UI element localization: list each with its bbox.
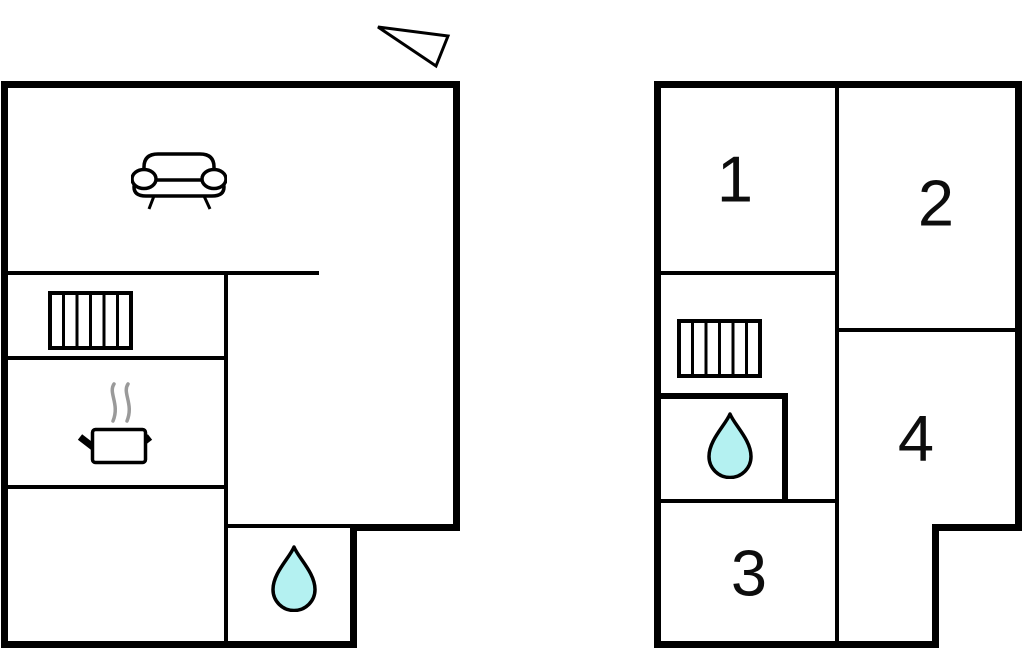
wall xyxy=(1,81,8,648)
water-drop-icon xyxy=(706,411,754,479)
wall xyxy=(453,81,460,531)
wall xyxy=(1015,81,1022,531)
wall xyxy=(654,81,1022,88)
room-label-3: 3 xyxy=(731,541,767,606)
radiator-icon xyxy=(677,319,762,378)
wall xyxy=(932,524,1022,531)
wall xyxy=(661,271,835,275)
room-label-2: 2 xyxy=(918,171,954,236)
sofa-icon xyxy=(131,150,227,212)
wall xyxy=(350,524,460,531)
wall xyxy=(654,641,939,648)
wall xyxy=(8,271,319,275)
wall xyxy=(839,328,1015,332)
wall xyxy=(932,524,939,648)
wall xyxy=(1,641,357,648)
floor-plan-canvas: 1 2 3 4 xyxy=(0,0,1024,648)
wall xyxy=(350,524,357,648)
north-arrow-icon xyxy=(370,16,462,76)
wall xyxy=(228,524,350,528)
wall xyxy=(1,81,460,88)
wall xyxy=(661,499,835,503)
wall xyxy=(8,356,224,360)
radiator-icon xyxy=(48,291,133,350)
wall xyxy=(661,393,788,399)
wall xyxy=(224,271,228,643)
wall xyxy=(835,88,839,641)
wall xyxy=(654,81,661,648)
wall xyxy=(8,485,224,489)
stove-pot-icon xyxy=(70,380,160,466)
room-label-4: 4 xyxy=(898,406,934,471)
wall xyxy=(782,393,788,503)
room-label-1: 1 xyxy=(717,147,753,212)
water-drop-icon xyxy=(270,544,318,612)
